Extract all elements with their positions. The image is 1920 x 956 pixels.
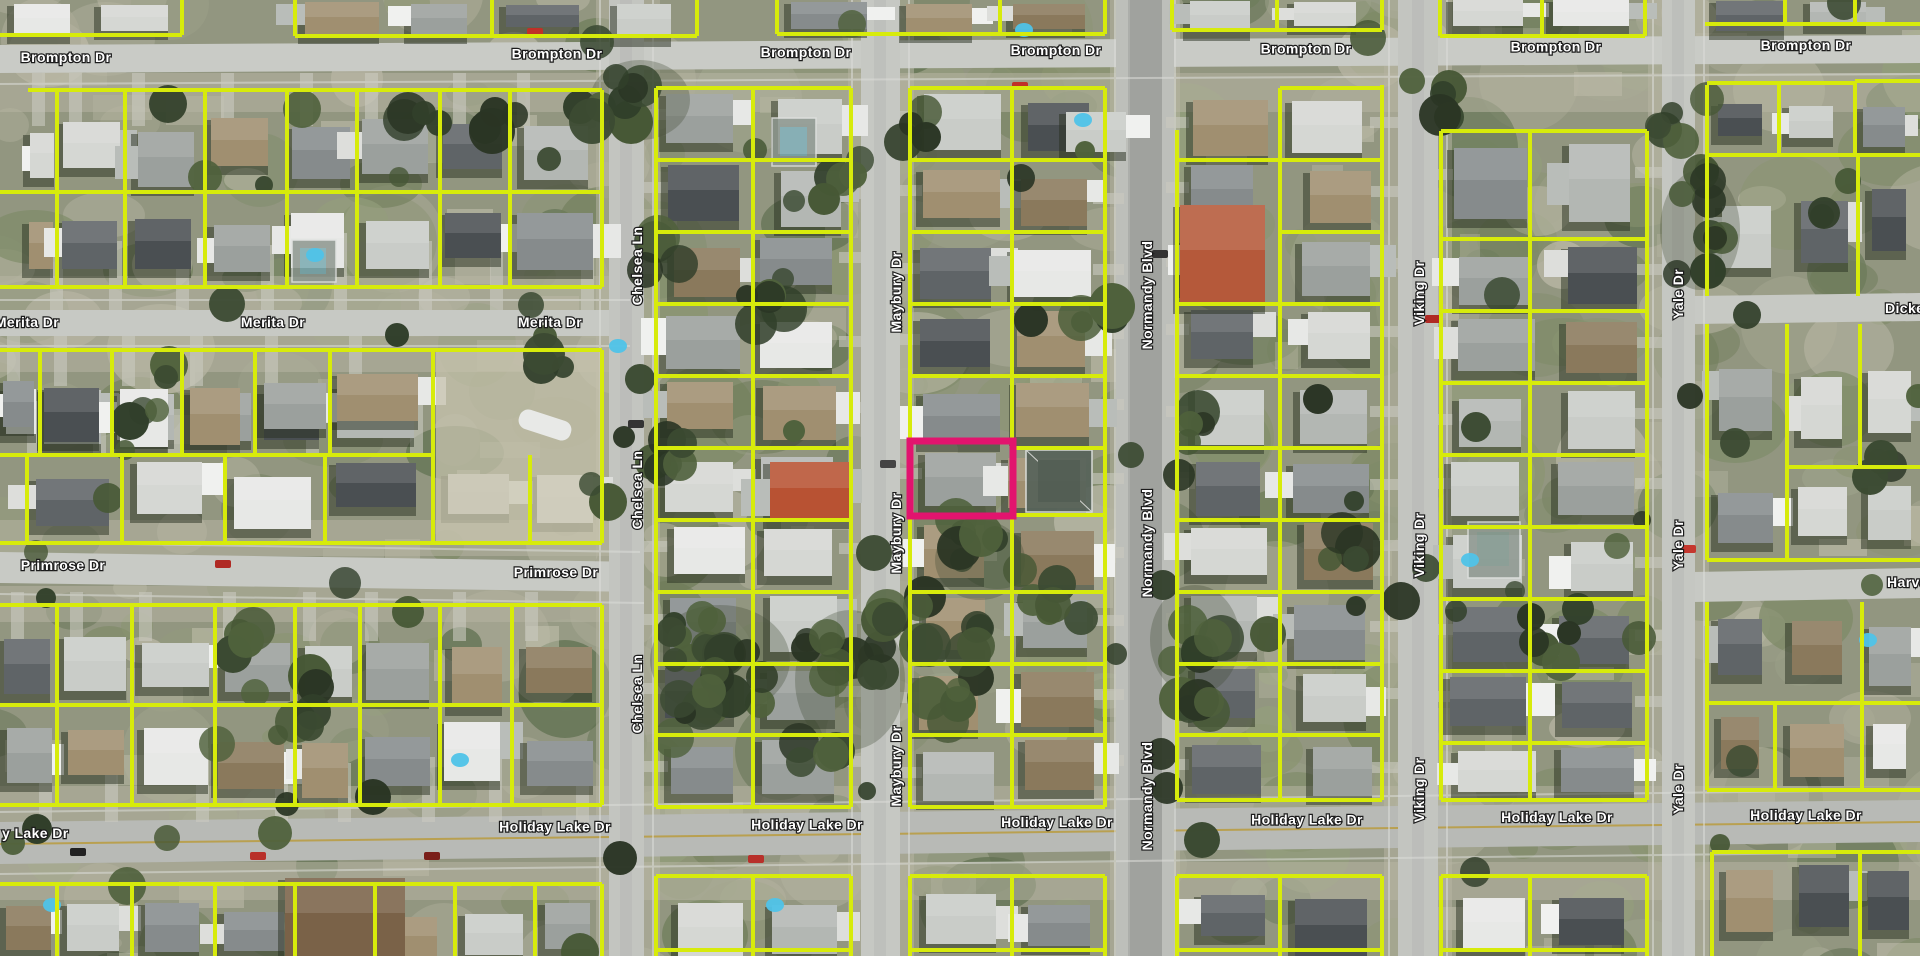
svg-text:Viking Dr: Viking Dr [1411, 512, 1427, 577]
svg-text:Brompton Dr: Brompton Dr [21, 49, 112, 65]
svg-text:Chelsea Ln: Chelsea Ln [629, 655, 645, 734]
svg-text:Brompton Dr: Brompton Dr [1511, 39, 1602, 55]
svg-text:Primrose Dr: Primrose Dr [21, 557, 106, 573]
svg-text:Yale Dr: Yale Dr [1670, 764, 1686, 814]
svg-text:Viking Dr: Viking Dr [1411, 260, 1427, 325]
svg-text:Brompton Dr: Brompton Dr [1261, 40, 1352, 56]
svg-text:Brompton Dr: Brompton Dr [1011, 42, 1102, 58]
svg-text:Normandy Blvd: Normandy Blvd [1139, 742, 1155, 851]
svg-text:Primrose Dr: Primrose Dr [514, 564, 599, 580]
svg-text:Merita Dr: Merita Dr [518, 314, 582, 330]
svg-text:Holiday Lake Dr: Holiday Lake Dr [1501, 809, 1613, 825]
svg-text:Brompton Dr: Brompton Dr [761, 44, 852, 60]
svg-text:Harvard Dr: Harvard Dr [1887, 574, 1920, 590]
svg-text:Brompton Dr: Brompton Dr [512, 46, 603, 62]
svg-text:Maybury Dr: Maybury Dr [888, 492, 904, 573]
svg-text:Normandy Blvd: Normandy Blvd [1139, 241, 1155, 350]
svg-text:Chelsea Ln: Chelsea Ln [629, 227, 645, 306]
svg-text:Brompton Dr: Brompton Dr [1761, 37, 1852, 53]
svg-text:Holiday Lake Dr: Holiday Lake Dr [499, 819, 611, 835]
svg-text:Viking Dr: Viking Dr [1411, 757, 1427, 822]
svg-text:Holiday Lake Dr: Holiday Lake Dr [751, 816, 863, 832]
svg-text:y Lake Dr: y Lake Dr [2, 825, 69, 841]
svg-text:Holiday Lake Dr: Holiday Lake Dr [1001, 814, 1113, 830]
svg-text:Maybury Dr: Maybury Dr [888, 251, 904, 332]
svg-text:Yale Dr: Yale Dr [1670, 520, 1686, 570]
svg-text:Yale Dr: Yale Dr [1670, 269, 1686, 319]
svg-text:Holiday Lake Dr: Holiday Lake Dr [1251, 812, 1363, 828]
svg-text:Chelsea Ln: Chelsea Ln [629, 451, 645, 530]
svg-text:Merita Dr: Merita Dr [0, 314, 59, 330]
svg-text:Merita Dr: Merita Dr [241, 314, 305, 330]
svg-text:Normandy Blvd: Normandy Blvd [1139, 489, 1155, 598]
svg-text:Maybury Dr: Maybury Dr [888, 725, 904, 806]
svg-text:Holiday Lake Dr: Holiday Lake Dr [1750, 807, 1862, 823]
svg-text:Dickens Dr: Dickens Dr [1885, 300, 1920, 316]
